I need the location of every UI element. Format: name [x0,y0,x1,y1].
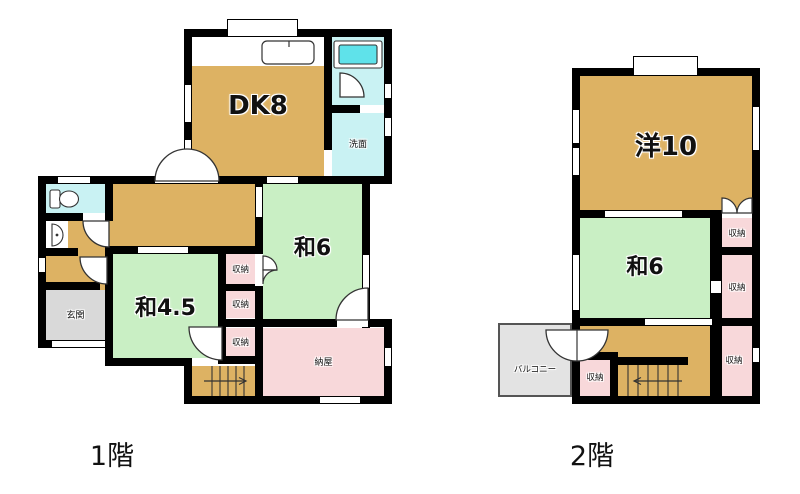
sliding-door [267,176,298,184]
wall [710,210,722,326]
closet-door [710,281,722,293]
hallway-f1 [113,184,263,246]
wall [572,68,633,76]
floorplan-canvas: DK8 洗面 和6 和4.5 玄関 収納 収納 収納 納屋 洋10 和6 収納 … [0,0,800,494]
wall [710,326,722,404]
bay-window [633,56,698,76]
wall [218,254,226,364]
room-label-closet-bottom: 収納 [719,354,749,365]
opening [324,150,332,176]
room-label-closet-top: 収納 [722,227,752,238]
room-label-naya: 納屋 [263,355,384,367]
floor1-caption: 1階 [52,434,172,473]
window [384,84,392,98]
wall [38,213,83,221]
sliding-door [645,318,712,326]
balcony-door-opening [572,330,580,360]
wall [218,356,263,364]
opening [337,319,368,327]
window [572,148,580,175]
wall [38,248,78,256]
window [384,348,392,366]
window [58,176,90,184]
room-label-genkan: 玄関 [46,308,105,320]
window [320,396,360,404]
window [362,255,370,288]
entrance-door [52,340,105,348]
wall [105,246,113,366]
bay-window [227,19,298,37]
window [572,255,580,310]
window [572,110,580,143]
room-label-wa45: 和4.5 [113,291,218,321]
wall [610,357,688,365]
room-label-balcony: バルコニー [498,363,572,374]
wall [324,37,332,150]
room-label-dk8: DK8 [192,90,324,122]
wall [298,29,392,37]
stairs-f1 [192,366,255,396]
window [184,85,192,122]
room-label-closet-mid: 収納 [722,281,752,292]
window [752,107,760,150]
room-label-wa6-f1: 和6 [263,231,362,261]
room-label-closet1: 収納 [226,263,255,274]
opening [722,210,752,218]
floor2-caption: 2階 [532,434,652,473]
room-label-closet3: 収納 [226,336,255,347]
sink-nook [46,221,68,248]
window [752,348,760,362]
room-label-closet-hall: 収納 [580,371,610,382]
wall [572,396,760,404]
room-label-closet2: 収納 [226,298,255,309]
wall [324,105,360,113]
wall [105,358,190,366]
wall [184,396,392,404]
window [184,140,192,158]
wall [710,247,760,255]
wall [362,176,370,328]
kitchen-counter-icon [262,41,314,64]
sliding-door [255,187,263,217]
wall [384,29,392,184]
room-label-yo10: 洋10 [580,128,752,160]
hall-passage-f1 [105,221,113,246]
opening [155,176,218,184]
sliding-door [605,210,682,218]
window [38,258,46,272]
balcony [498,323,572,397]
sliding-door [138,246,188,254]
room-toilet [46,184,105,213]
opening [255,254,263,286]
room-label-wa6-f2: 和6 [580,250,710,280]
wall [105,176,113,221]
room-bath [332,37,384,105]
wall [698,68,760,76]
room-label-washroom: 洗面 [332,137,384,149]
wall [38,282,100,290]
window [384,118,392,136]
